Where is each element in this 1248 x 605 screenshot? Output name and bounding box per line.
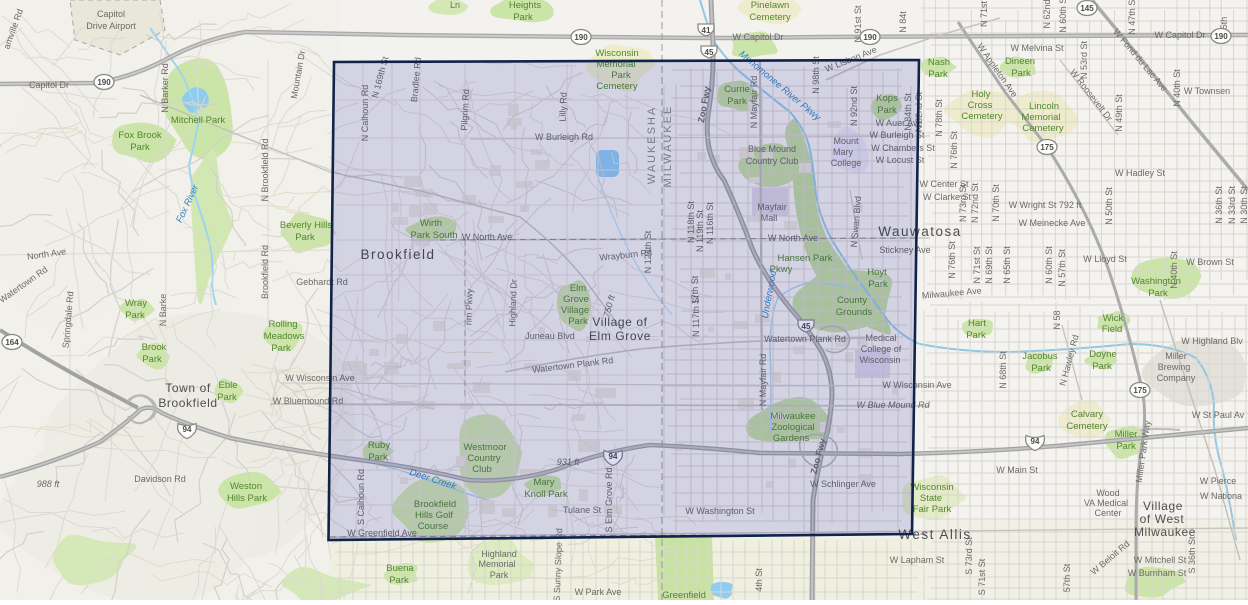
svg-text:Pinelawn: Pinelawn [751, 0, 790, 11]
svg-text:W Lloyd St: W Lloyd St [1083, 254, 1127, 264]
svg-text:190: 190 [97, 78, 111, 87]
svg-text:S 71st St: S 71st St [977, 558, 987, 595]
svg-text:Weston: Weston [230, 481, 262, 492]
svg-text:Doyne: Doyne [1089, 349, 1116, 360]
svg-text:N Brookfield Rd: N Brookfield Rd [260, 138, 270, 201]
svg-text:N 53rd St: N 53rd St [1079, 40, 1089, 79]
svg-text:Miller: Miller [1115, 429, 1138, 440]
svg-text:W Brown St: W Brown St [1186, 257, 1234, 267]
svg-text:N 70th St: N 70th St [991, 184, 1001, 222]
svg-text:Park: Park [1092, 361, 1112, 372]
svg-text:W Melvina St: W Melvina St [1010, 43, 1064, 53]
svg-text:Dineen: Dineen [1005, 56, 1035, 67]
svg-text:Heights: Heights [509, 0, 541, 11]
svg-text:Field: Field [1102, 324, 1123, 335]
svg-text:Lincoln: Lincoln [1029, 101, 1059, 112]
svg-text:N 50th St: N 50th St [1104, 187, 1114, 225]
svg-text:Fair Park: Fair Park [913, 504, 952, 515]
svg-text:Mitchell Park: Mitchell Park [171, 115, 226, 126]
svg-text:Park: Park [928, 69, 948, 80]
svg-text:190: 190 [574, 33, 588, 42]
svg-text:Memorial: Memorial [478, 559, 515, 569]
svg-text:N 30th St: N 30th St [1239, 186, 1248, 224]
svg-text:Nash: Nash [928, 57, 950, 68]
svg-text:41: 41 [702, 26, 711, 35]
svg-text:Drive Airport: Drive Airport [86, 21, 136, 31]
svg-text:N 36th St: N 36th St [1214, 186, 1224, 224]
svg-text:W Main St: W Main St [996, 465, 1038, 475]
svg-text:N 68th St: N 68th St [998, 351, 1008, 389]
svg-text:W Park Ave: W Park Ave [575, 587, 622, 597]
svg-text:Cemetery: Cemetery [1022, 123, 1063, 134]
svg-text:175: 175 [1040, 143, 1054, 152]
svg-text:4th St: 4th St [754, 568, 764, 592]
svg-text:Ln: Ln [450, 0, 460, 10]
svg-text:Park: Park [1148, 288, 1168, 299]
svg-text:Miller: Miller [1165, 351, 1187, 361]
svg-text:Village: Village [1143, 499, 1183, 513]
svg-text:Wray: Wray [125, 298, 147, 309]
svg-text:Cemetery: Cemetery [749, 12, 790, 23]
svg-text:W Pierce: W Pierce [1200, 476, 1237, 486]
svg-text:Eble: Eble [218, 380, 237, 391]
svg-text:W Highland Blv: W Highland Blv [1181, 336, 1243, 346]
svg-text:N 76th St: N 76th St [949, 131, 959, 169]
svg-text:N 73rd St: N 73rd St [958, 183, 968, 222]
svg-text:Park: Park [125, 310, 145, 321]
svg-text:N 84t: N 84t [898, 11, 908, 33]
svg-text:Park: Park [271, 343, 291, 354]
svg-text:94: 94 [183, 425, 192, 434]
svg-text:N Barke: N Barke [158, 294, 168, 327]
svg-text:Memorial: Memorial [1021, 112, 1060, 123]
svg-text:Park: Park [142, 354, 162, 365]
svg-text:Cemetery: Cemetery [1066, 421, 1107, 432]
svg-text:of West: of West [1140, 512, 1185, 526]
svg-text:Fox Brook: Fox Brook [118, 130, 162, 141]
svg-text:W Hadley St: W Hadley St [1115, 168, 1166, 178]
svg-text:Wood: Wood [1096, 488, 1119, 498]
svg-text:Wisconsin: Wisconsin [910, 482, 953, 493]
svg-text:N 33rd St: N 33rd St [1227, 185, 1237, 224]
svg-text:N 40th St: N 40th St [1169, 251, 1179, 289]
svg-text:Park: Park [1031, 363, 1051, 374]
svg-text:N 71st St: N 71st St [972, 246, 982, 284]
svg-text:N 62nd: N 62nd [1042, 0, 1052, 29]
svg-text:S 36th St: S 36th St [1187, 536, 1197, 574]
svg-text:Brook: Brook [142, 342, 167, 353]
svg-text:190: 190 [863, 33, 877, 42]
svg-text:Buena: Buena [386, 563, 414, 574]
svg-text:W Lapham St: W Lapham St [890, 555, 945, 565]
svg-text:Wick: Wick [1103, 313, 1124, 324]
svg-text:Wisconsin: Wisconsin [595, 48, 638, 59]
svg-text:Calvary: Calvary [1071, 409, 1103, 420]
svg-text:Park: Park [130, 142, 150, 153]
svg-text:N 72nd St: N 72nd St [970, 182, 980, 223]
svg-text:N 71st: N 71st [979, 0, 989, 27]
svg-text:N 78th St: N 78th St [934, 99, 944, 137]
svg-text:N 60th St: N 60th St [1044, 246, 1054, 284]
svg-text:W Capitol Dr: W Capitol Dr [732, 32, 783, 42]
svg-text:Hart: Hart [968, 318, 986, 329]
svg-text:W Wright St 792 ft: W Wright St 792 ft [1009, 200, 1082, 210]
svg-text:VA Medical: VA Medical [1084, 498, 1128, 508]
svg-text:Park: Park [966, 330, 986, 341]
svg-text:N 40th St: N 40th St [1172, 69, 1182, 107]
svg-text:Park: Park [217, 392, 237, 403]
svg-text:Park: Park [1011, 68, 1031, 79]
svg-text:Davidson Rd: Davidson Rd [134, 474, 186, 484]
svg-text:Hills Park: Hills Park [227, 493, 267, 504]
svg-text:N 76th St: N 76th St [947, 241, 957, 279]
svg-text:Jacobus: Jacobus [1022, 351, 1058, 362]
svg-text:57th St: 57th St [1062, 563, 1072, 592]
svg-text:Rolling: Rolling [268, 319, 297, 330]
svg-text:N Barker Rd: N Barker Rd [160, 63, 170, 113]
svg-text:Highland: Highland [481, 549, 517, 559]
svg-text:W Nationa: W Nationa [1200, 491, 1242, 501]
svg-text:W Mitchell St: W Mitchell St [1134, 555, 1187, 565]
svg-text:145: 145 [1080, 4, 1094, 13]
svg-text:W Capitol Dr: W Capitol Dr [1154, 30, 1205, 40]
svg-text:N 47th St: N 47th St [1127, 0, 1137, 35]
svg-text:Holy: Holy [971, 89, 990, 100]
svg-text:175: 175 [1133, 386, 1147, 395]
svg-text:Capitol Dr: Capitol Dr [29, 80, 69, 90]
svg-text:State: State [920, 493, 942, 504]
svg-text:W Burnham St: W Burnham St [1128, 568, 1187, 578]
svg-text:Park: Park [513, 12, 533, 23]
svg-text:Center: Center [1094, 508, 1121, 518]
svg-text:Town of: Town of [165, 381, 211, 395]
svg-text:Company: Company [1157, 373, 1196, 383]
svg-text:Brookfield Rd: Brookfield Rd [260, 245, 270, 299]
svg-text:94: 94 [1031, 437, 1040, 446]
svg-text:Meadows: Meadows [264, 331, 305, 342]
svg-text:Park: Park [1116, 441, 1136, 452]
svg-text:N 57th St: N 57th St [1057, 249, 1067, 287]
svg-text:Beverly Hills: Beverly Hills [280, 220, 333, 231]
svg-text:Cemetery: Cemetery [961, 111, 1002, 122]
svg-text:190: 190 [1214, 32, 1228, 41]
svg-text:Brewing: Brewing [1158, 362, 1191, 372]
svg-text:Park: Park [389, 575, 409, 586]
svg-text:45: 45 [705, 48, 714, 57]
svg-text:W St Paul Av: W St Paul Av [1192, 410, 1245, 420]
svg-text:Park: Park [490, 570, 509, 580]
svg-text:988 ft: 988 ft [37, 479, 60, 489]
svg-text:Cross: Cross [968, 100, 993, 111]
svg-text:N 65th St: N 65th St [1002, 246, 1012, 284]
svg-text:N 69th St: N 69th St [984, 246, 994, 284]
svg-text:W Meinecke Ave: W Meinecke Ave [1019, 218, 1086, 228]
svg-text:Capitol: Capitol [97, 9, 125, 19]
svg-text:N 60th St: N 60th St [1058, 0, 1068, 33]
svg-text:Brookfield: Brookfield [158, 396, 217, 410]
svg-text:164: 164 [5, 338, 19, 347]
svg-text:W Townsen: W Townsen [1184, 86, 1230, 96]
svg-text:N 49th St: N 49th St [1114, 94, 1124, 132]
svg-text:N 58: N 58 [1052, 310, 1062, 329]
svg-text:Greenfield: Greenfield [662, 590, 706, 600]
svg-text:S 73rd St: S 73rd St [964, 537, 974, 575]
svg-text:Park: Park [295, 232, 315, 243]
